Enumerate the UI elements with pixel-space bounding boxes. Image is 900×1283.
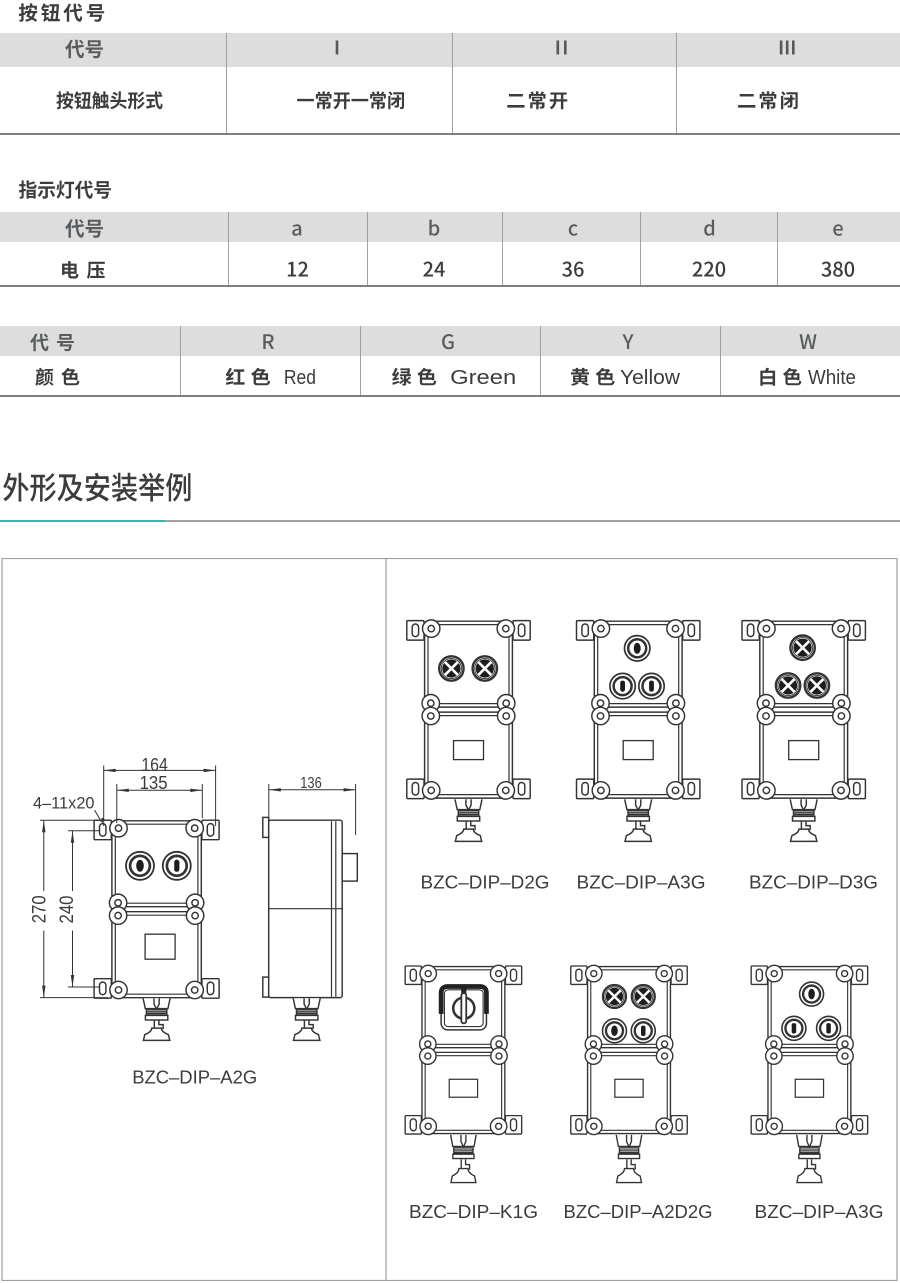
svg-text:BZC–DIP–K1G: BZC–DIP–K1G: [409, 1201, 538, 1222]
svg-text:136: 136: [300, 775, 322, 792]
svg-text:White: White: [808, 367, 856, 389]
svg-text:Yellow: Yellow: [620, 367, 681, 389]
svg-text:Green: Green: [450, 367, 516, 389]
svg-text:BZC–DIP–A3G: BZC–DIP–A3G: [577, 872, 706, 893]
svg-text:BZC–DIP–A2G: BZC–DIP–A2G: [132, 1067, 257, 1088]
svg-text:BZC–DIP–D3G: BZC–DIP–D3G: [749, 872, 878, 893]
svg-text:135: 135: [140, 772, 168, 793]
svg-text:270: 270: [29, 895, 50, 923]
svg-text:BZC–DIP–A3G: BZC–DIP–A3G: [755, 1201, 884, 1222]
svg-text:4–11x20: 4–11x20: [33, 794, 95, 813]
svg-text:240: 240: [57, 896, 78, 924]
svg-text:BZC–DIP–A2D2G: BZC–DIP–A2D2G: [564, 1201, 713, 1222]
svg-text:BZC–DIP–D2G: BZC–DIP–D2G: [421, 872, 550, 893]
svg-text:Red: Red: [284, 367, 316, 389]
